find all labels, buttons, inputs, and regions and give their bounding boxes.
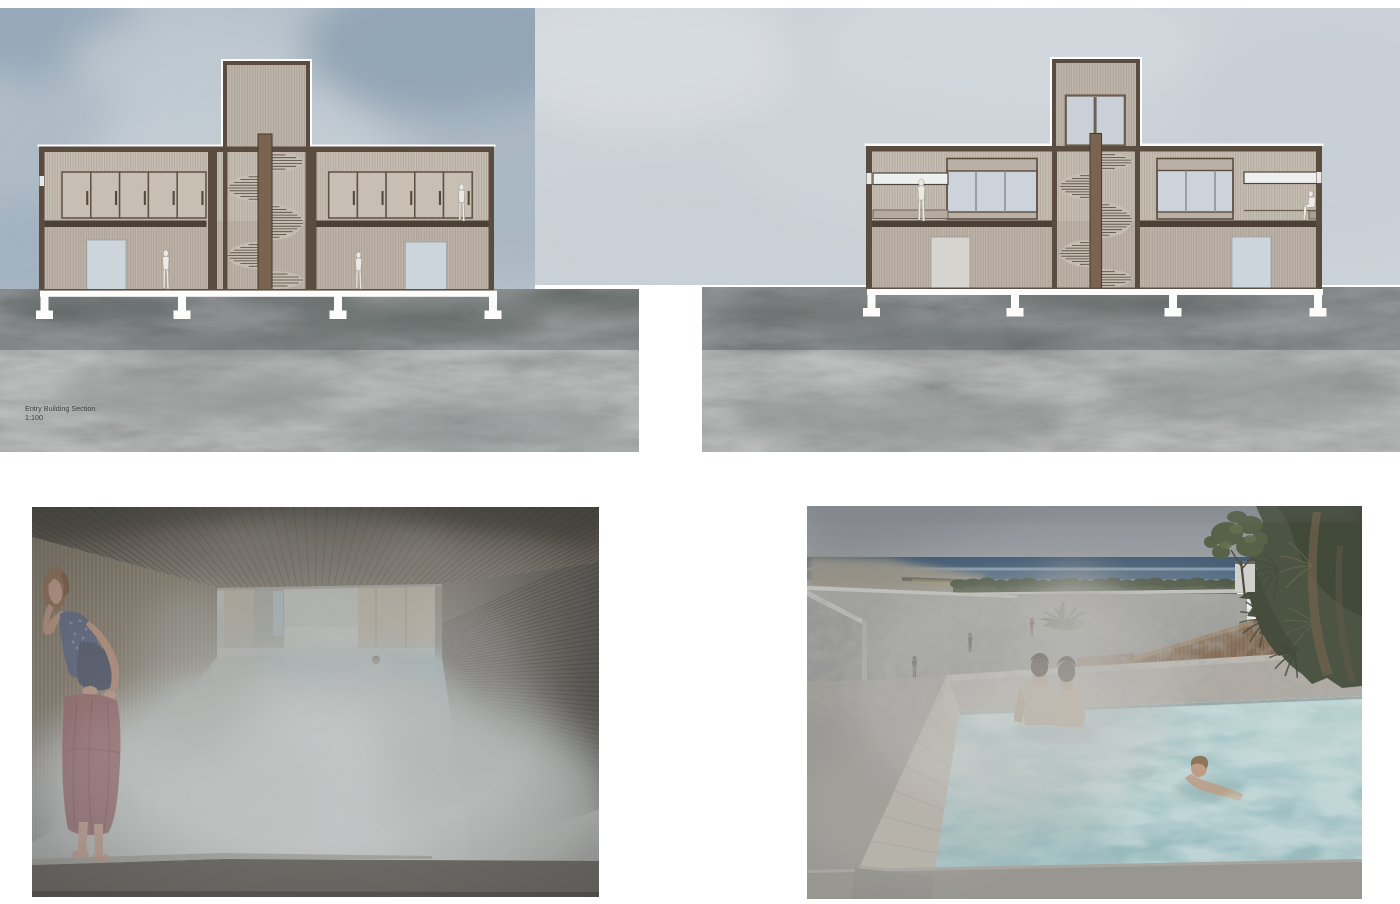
svg-text:Entry Building Section: Entry Building Section	[25, 404, 95, 413]
svg-text:1:100: 1:100	[25, 413, 43, 422]
